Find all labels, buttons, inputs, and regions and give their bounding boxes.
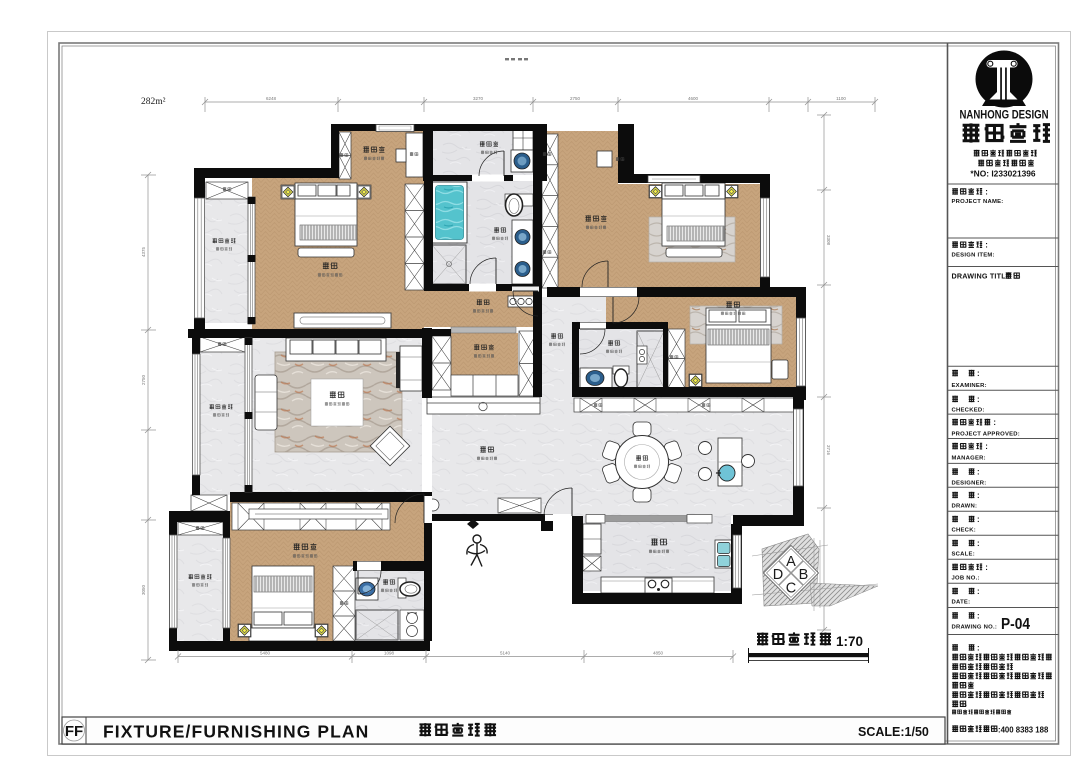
svg-text::: : — [977, 539, 980, 548]
svg-text::: : — [985, 442, 988, 451]
svg-text:282m²: 282m² — [141, 97, 166, 107]
svg-text::: : — [977, 468, 980, 477]
svg-text::400 8383 188: :400 8383 188 — [998, 725, 1049, 734]
svg-text:5480: 5480 — [260, 651, 271, 656]
svg-text:3050: 3050 — [141, 584, 146, 595]
svg-text:1:70: 1:70 — [836, 634, 863, 649]
svg-text:SCALE:1/50: SCALE:1/50 — [858, 725, 929, 739]
svg-text:DRAWING TITLE: DRAWING TITLE — [952, 271, 1011, 280]
svg-text:2750: 2750 — [141, 374, 146, 385]
svg-text:SCALE:: SCALE: — [952, 552, 975, 558]
svg-text:DATE:: DATE: — [952, 600, 971, 606]
svg-text::: : — [977, 644, 980, 653]
svg-text:PROJECT APPROVED:: PROJECT APPROVED: — [952, 432, 1021, 438]
svg-text:2750: 2750 — [570, 96, 581, 101]
svg-text::: : — [977, 395, 980, 404]
svg-text:4850: 4850 — [653, 651, 664, 656]
svg-text:4600: 4600 — [688, 96, 699, 101]
svg-text:DRAWING NO.:: DRAWING NO.: — [952, 624, 998, 630]
svg-text::: : — [985, 188, 988, 197]
svg-text::: : — [985, 241, 988, 250]
svg-text:5140: 5140 — [500, 651, 511, 656]
svg-text:P-04: P-04 — [1001, 616, 1030, 633]
svg-text:*NO: I233021396: *NO: I233021396 — [970, 168, 1036, 178]
svg-text:A: A — [786, 554, 796, 570]
svg-text:D: D — [773, 567, 783, 583]
svg-text:FF: FF — [65, 723, 83, 740]
svg-text:1098: 1098 — [384, 651, 395, 656]
svg-text:FIXTURE/FURNISHING PLAN: FIXTURE/FURNISHING PLAN — [103, 722, 369, 742]
svg-text:1100: 1100 — [836, 96, 846, 101]
svg-text:DRAWN:: DRAWN: — [952, 504, 978, 510]
svg-text:CHECK:: CHECK: — [952, 528, 976, 534]
svg-text:6248: 6248 — [266, 96, 277, 101]
svg-text::: : — [977, 515, 980, 524]
svg-text:JOB NO.:: JOB NO.: — [952, 576, 980, 582]
svg-text::: : — [977, 612, 980, 621]
svg-text:CHECKED:: CHECKED: — [952, 407, 985, 413]
svg-text:C: C — [786, 581, 796, 597]
svg-text:NANHONG DESIGN: NANHONG DESIGN — [960, 108, 1049, 122]
svg-text::: : — [985, 563, 988, 572]
svg-text:DESIGN ITEM:: DESIGN ITEM: — [952, 252, 995, 258]
svg-text:4375: 4375 — [141, 246, 146, 257]
svg-text::: : — [977, 369, 980, 378]
svg-text:EXAMINER:: EXAMINER: — [952, 383, 987, 389]
svg-text:3716: 3716 — [826, 445, 831, 456]
svg-text:B: B — [799, 567, 809, 583]
svg-text::: : — [977, 491, 980, 500]
svg-text:3270: 3270 — [473, 96, 484, 101]
svg-text::: : — [977, 587, 980, 596]
svg-text:3308: 3308 — [826, 235, 831, 246]
svg-text:DESIGNER:: DESIGNER: — [952, 480, 987, 486]
svg-text::: : — [993, 418, 996, 427]
svg-text:MANAGER:: MANAGER: — [952, 455, 986, 461]
svg-text:PROJECT NAME:: PROJECT NAME: — [952, 199, 1004, 205]
